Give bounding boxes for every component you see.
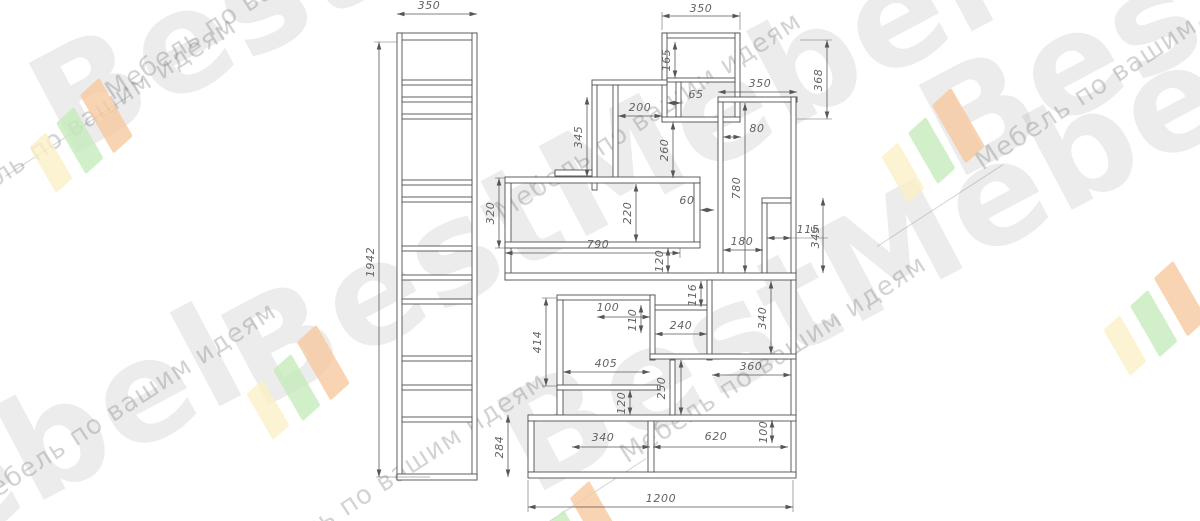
cabinet-panel [557,390,563,415]
dimension-label: 1942 [364,247,377,277]
cabinet-panel [667,78,735,82]
dimension-label: 790 [587,238,610,251]
cabinet-panel [650,305,712,310]
blueprint-page: BestMebelBestMebelBestMebelBestMebelBest… [0,0,1200,521]
cabinet-panel [718,97,797,102]
cabinet-panel [505,183,511,280]
cabinet-panel [762,198,791,203]
dimension-label: 345 [809,226,822,249]
dimension-label: 100 [597,301,620,314]
dimension-label: 120 [615,392,628,415]
cabinet-panel [650,295,655,360]
dimension-label: 120 [653,250,666,273]
dimension-label: 200 [629,101,652,114]
cabinet-panel [662,33,740,38]
dimension-label: 165 [660,49,673,72]
dimension-label: 240 [670,319,693,332]
cabinet-panel [735,33,740,122]
dimension-label: 100 [757,421,770,444]
cabinet-panel [555,170,592,176]
dimension-lines: 3501942350165652003503688034526078032022… [364,0,827,507]
cabinet-panel [402,275,472,280]
cabinet-panel [650,354,796,359]
cabinet-panel [472,33,477,480]
dimension-label: 116 [686,284,699,307]
cabinet-panel [402,246,472,251]
cabinet-panel [670,360,675,415]
dimension-label: 350 [690,2,713,15]
cabinet-panel [762,203,767,273]
dimension-label: 414 [531,331,544,354]
cabinet-panel [662,33,667,122]
cabinet-panel [402,356,472,361]
dimension-label: 360 [740,360,763,373]
cabinet-panel [402,180,472,185]
cabinet-panel [402,114,472,119]
dimension-label: 368 [812,69,825,92]
side-view-drawing [397,33,477,480]
front-view-drawing [505,33,797,478]
cabinet-panel [592,80,667,85]
cabinet-panel [557,295,655,300]
dimension-label: 320 [484,202,497,225]
cabinet-panel [676,82,681,117]
dimension-label: 350 [418,0,441,12]
dimension-label: 180 [731,235,754,248]
furniture-technical-drawing: 3501942350165652003503688034526078032022… [0,0,1200,521]
cabinet-panel [402,197,472,202]
cabinet-panel [694,183,700,242]
cabinet-panel [402,417,472,422]
cabinet-panel [528,472,796,478]
cabinet-panel [528,415,796,421]
cabinet-panel [528,421,534,472]
cabinet-panel [592,85,597,190]
dimension-label: 60 [679,194,694,207]
dimension-label: 340 [592,431,615,444]
dimension-label: 110 [626,309,639,332]
dimension-label: 350 [749,77,772,90]
dimension-label: 345 [572,126,585,149]
dimension-label: 65 [688,88,703,101]
dimension-label: 405 [595,357,618,370]
cabinet-panel [648,421,654,472]
cabinet-panel [402,299,472,304]
cabinet-panel [397,33,402,480]
dimension-label: 340 [756,307,769,330]
cabinet-panel [707,280,712,360]
cabinet-panel [402,80,472,85]
cabinet-panel [402,97,472,102]
dimension-label: 80 [749,122,764,135]
dimension-label: 260 [658,139,671,162]
cabinet-panel [662,117,740,122]
dimension-label: 1200 [646,492,676,505]
dimension-label: 284 [493,436,506,459]
dimension-label: 250 [655,377,668,400]
dimension-label: 780 [730,177,743,200]
dimension-label: 220 [621,202,634,225]
cabinet-panel [397,33,477,40]
cabinet-panel [505,177,700,183]
cabinet-panel [557,300,563,390]
dimension-label: 620 [705,430,728,443]
cabinet-panel [505,273,796,280]
cabinet-panel [557,385,660,390]
cabinet-panel [718,102,723,273]
cabinet-panel [402,385,472,390]
cabinet-panel [613,85,618,178]
